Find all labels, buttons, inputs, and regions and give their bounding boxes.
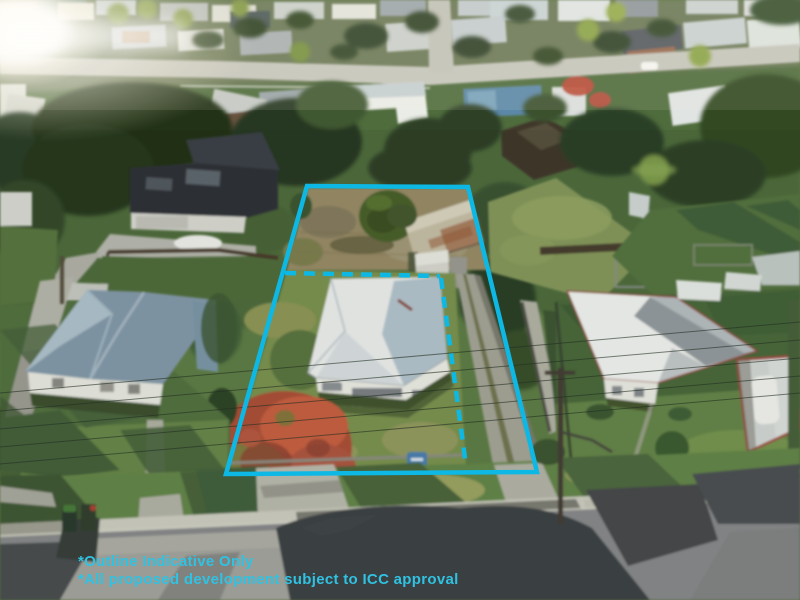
svg-text:*Outline Indicative Only: *Outline Indicative Only <box>78 553 254 570</box>
svg-text:*All proposed development subj: *All proposed development subject to ICC… <box>78 571 459 588</box>
